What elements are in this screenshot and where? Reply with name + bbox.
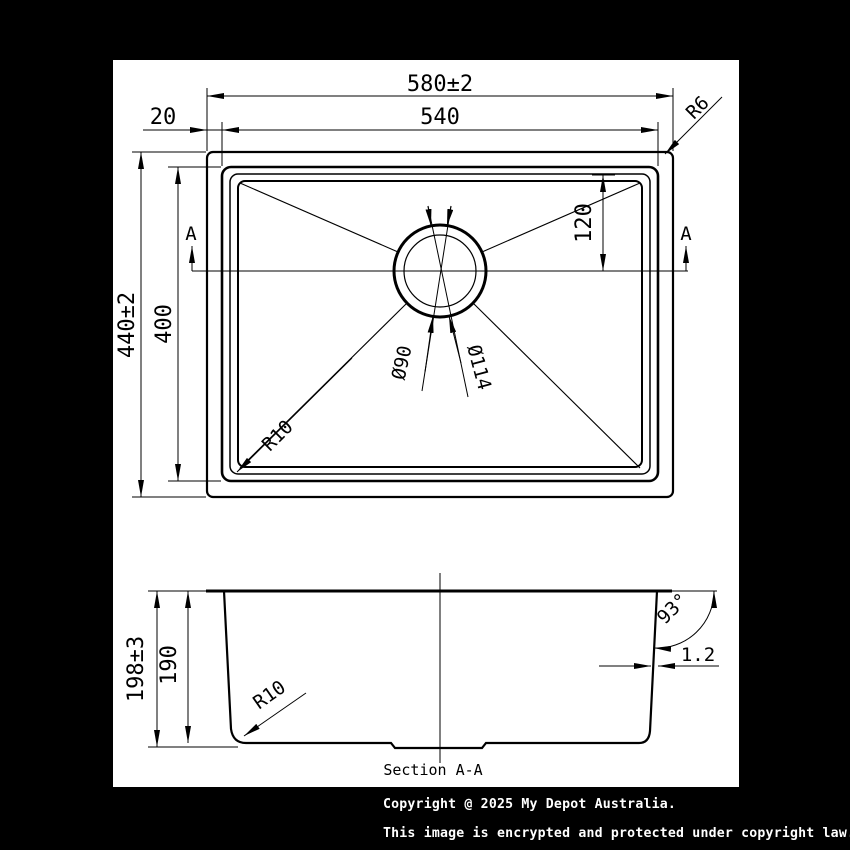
inner-depth-label: 190 <box>157 645 182 685</box>
section-marker-right: A <box>680 223 692 245</box>
section-marker-left: A <box>185 223 197 245</box>
overall-width-label: 580±2 <box>407 72 473 97</box>
overall-depth-label: 440±2 <box>115 292 140 358</box>
bowl-width-label: 540 <box>420 105 460 130</box>
copyright-line1: Copyright @ 2025 My Depot Australia. <box>383 796 676 812</box>
section-title: Section A-A <box>383 761 482 779</box>
drain-offset-label: 120 <box>572 203 597 243</box>
overall-height-label: 198±3 <box>124 636 149 702</box>
drawing-canvas: 580±2 540 20 440±2 400 120 R6 R10 Ø90 Ø1… <box>0 0 850 850</box>
copyright-line2: This image is encrypted and protected un… <box>383 825 850 841</box>
bowl-depth-label: 400 <box>152 304 177 344</box>
sink-technical-drawing: 580±2 540 20 440±2 400 120 R6 R10 Ø90 Ø1… <box>0 0 850 850</box>
wall-thickness-label: 1.2 <box>681 644 715 666</box>
rim-offset-label: 20 <box>150 105 177 130</box>
